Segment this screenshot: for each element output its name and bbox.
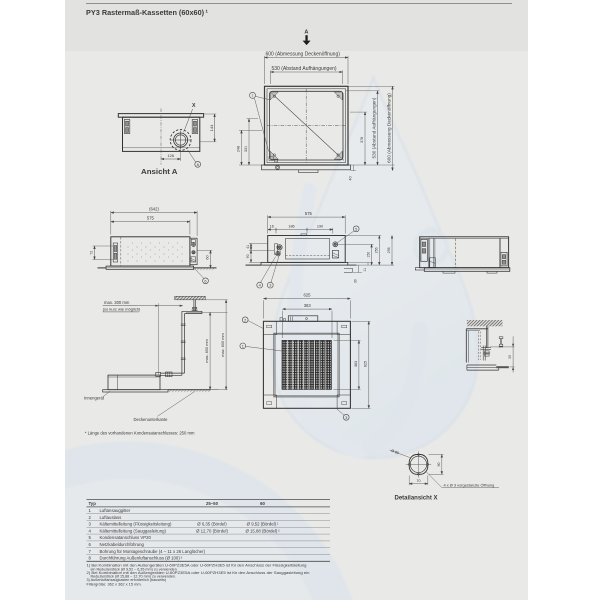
svg-text:4 x Ø 3 vorgestanzte Öffnung: 4 x Ø 3 vorgestanzte Öffnung bbox=[444, 482, 495, 487]
svg-text:max. 600 mm: max. 600 mm bbox=[220, 333, 225, 357]
svg-text:625: 625 bbox=[364, 361, 368, 367]
svg-text:600 (Abmessung Deckenöffnung): 600 (Abmessung Deckenöffnung) bbox=[266, 51, 341, 57]
svg-text:5: 5 bbox=[355, 226, 357, 231]
svg-text:60: 60 bbox=[205, 255, 209, 259]
svg-text:72: 72 bbox=[89, 251, 93, 255]
svg-text:256: 256 bbox=[374, 247, 378, 253]
svg-text:298: 298 bbox=[387, 247, 391, 253]
svg-text:575: 575 bbox=[147, 215, 155, 220]
svg-text:Ø 9,52 (Bördel) ¹: Ø 9,52 (Bördel) ¹ bbox=[247, 522, 279, 527]
svg-text:625: 625 bbox=[304, 292, 312, 297]
svg-text:Luftauslass: Luftauslass bbox=[100, 515, 122, 520]
svg-text:(so kurz wie möglich): (so kurz wie möglich) bbox=[103, 306, 141, 311]
svg-text:max. 300 mm: max. 300 mm bbox=[104, 300, 130, 305]
svg-text:30: 30 bbox=[508, 355, 512, 359]
svg-text:Kondensatanschluss VP20: Kondensatanschluss VP20 bbox=[100, 535, 152, 540]
svg-text:2: 2 bbox=[244, 317, 246, 322]
svg-text:Ø 15,88 (Bördel) ²: Ø 15,88 (Bördel) ² bbox=[245, 528, 280, 533]
svg-text:1: 1 bbox=[242, 344, 244, 349]
svg-text:6: 6 bbox=[204, 278, 206, 283]
svg-text:Innengerät: Innengerät bbox=[84, 395, 105, 400]
svg-text:Kältemittelleitung (Sauggaslei: Kältemittelleitung (Sauggasleitung) bbox=[100, 528, 167, 533]
svg-text:Ø 6,35 (Bördel): Ø 6,35 (Bördel) bbox=[197, 522, 227, 527]
svg-text:11: 11 bbox=[363, 268, 367, 272]
svg-text:60: 60 bbox=[260, 501, 265, 506]
svg-text:A: A bbox=[304, 30, 308, 36]
svg-text:41: 41 bbox=[246, 245, 250, 249]
svg-text:Ø 12,70 (Bördel): Ø 12,70 (Bördel) bbox=[196, 528, 228, 533]
svg-text:Deckenunterkante: Deckenunterkante bbox=[134, 417, 169, 422]
svg-text:X: X bbox=[192, 103, 196, 109]
svg-text:* Länge des vorhandenen Konden: * Länge des vorhandenen Kondensatanschlu… bbox=[85, 431, 195, 436]
svg-text:Ansicht A: Ansicht A bbox=[141, 167, 178, 176]
svg-text:150: 150 bbox=[367, 252, 371, 258]
svg-text:Detailansicht X: Detailansicht X bbox=[395, 495, 438, 502]
svg-text:Netzkabeldurchführung: Netzkabeldurchführung bbox=[100, 542, 145, 547]
svg-text:331: 331 bbox=[244, 146, 248, 152]
svg-text:90: 90 bbox=[246, 254, 250, 258]
svg-text:8: 8 bbox=[197, 162, 199, 167]
svg-text:7: 7 bbox=[251, 93, 253, 98]
svg-text:126: 126 bbox=[167, 153, 174, 158]
svg-text:Luftansauggitter: Luftansauggitter bbox=[100, 508, 131, 513]
svg-text:248: 248 bbox=[237, 146, 241, 152]
svg-text:90: 90 bbox=[437, 463, 441, 467]
svg-text:600 (Abmessung Deckenöffnung): 600 (Abmessung Deckenöffnung) bbox=[386, 93, 391, 163]
svg-text:PY3 Rastermaß-Kassetten (60x60: PY3 Rastermaß-Kassetten (60x60) ¹ bbox=[86, 8, 208, 17]
svg-text:Kältemittelleitung (Flüssigkei: Kältemittelleitung (Flüssigkeitsleitung) bbox=[100, 522, 172, 527]
svg-text:16: 16 bbox=[270, 224, 274, 228]
svg-text:3: 3 bbox=[269, 283, 271, 288]
svg-text:Bohrung für Montageschraube (4: Bohrung für Montageschraube (4 – 11 x 26… bbox=[100, 549, 206, 554]
svg-text:186: 186 bbox=[288, 224, 294, 228]
svg-text:530 (Abstand Aufhängungen): 530 (Abstand Aufhängungen) bbox=[272, 66, 337, 72]
svg-text:max. 850 mm: max. 850 mm bbox=[204, 339, 209, 363]
svg-text:190: 190 bbox=[317, 224, 323, 228]
svg-text:3: 3 bbox=[345, 415, 347, 420]
svg-text:Filtergröße: 362 x 362 x 15 mm: Filtergröße: 362 x 362 x 15 mm. bbox=[87, 582, 142, 587]
svg-text:378: 378 bbox=[360, 137, 364, 143]
svg-text:363: 363 bbox=[304, 303, 312, 308]
svg-text:30: 30 bbox=[353, 279, 357, 283]
svg-text:70: 70 bbox=[417, 479, 421, 483]
svg-text:Typ: Typ bbox=[89, 501, 97, 506]
svg-text:25–50: 25–50 bbox=[206, 501, 219, 506]
svg-text:40: 40 bbox=[348, 176, 352, 180]
svg-text:144: 144 bbox=[209, 124, 214, 131]
svg-text:363: 363 bbox=[354, 361, 358, 367]
svg-text:575: 575 bbox=[305, 211, 313, 216]
svg-text:Durchführung Außenluftanschlus: Durchführung Außenluftanschluss (Ø 100) … bbox=[100, 556, 183, 561]
svg-text:530 (Abstand Aufhängungen): 530 (Abstand Aufhängungen) bbox=[371, 97, 376, 158]
svg-text:(642): (642) bbox=[149, 206, 159, 211]
